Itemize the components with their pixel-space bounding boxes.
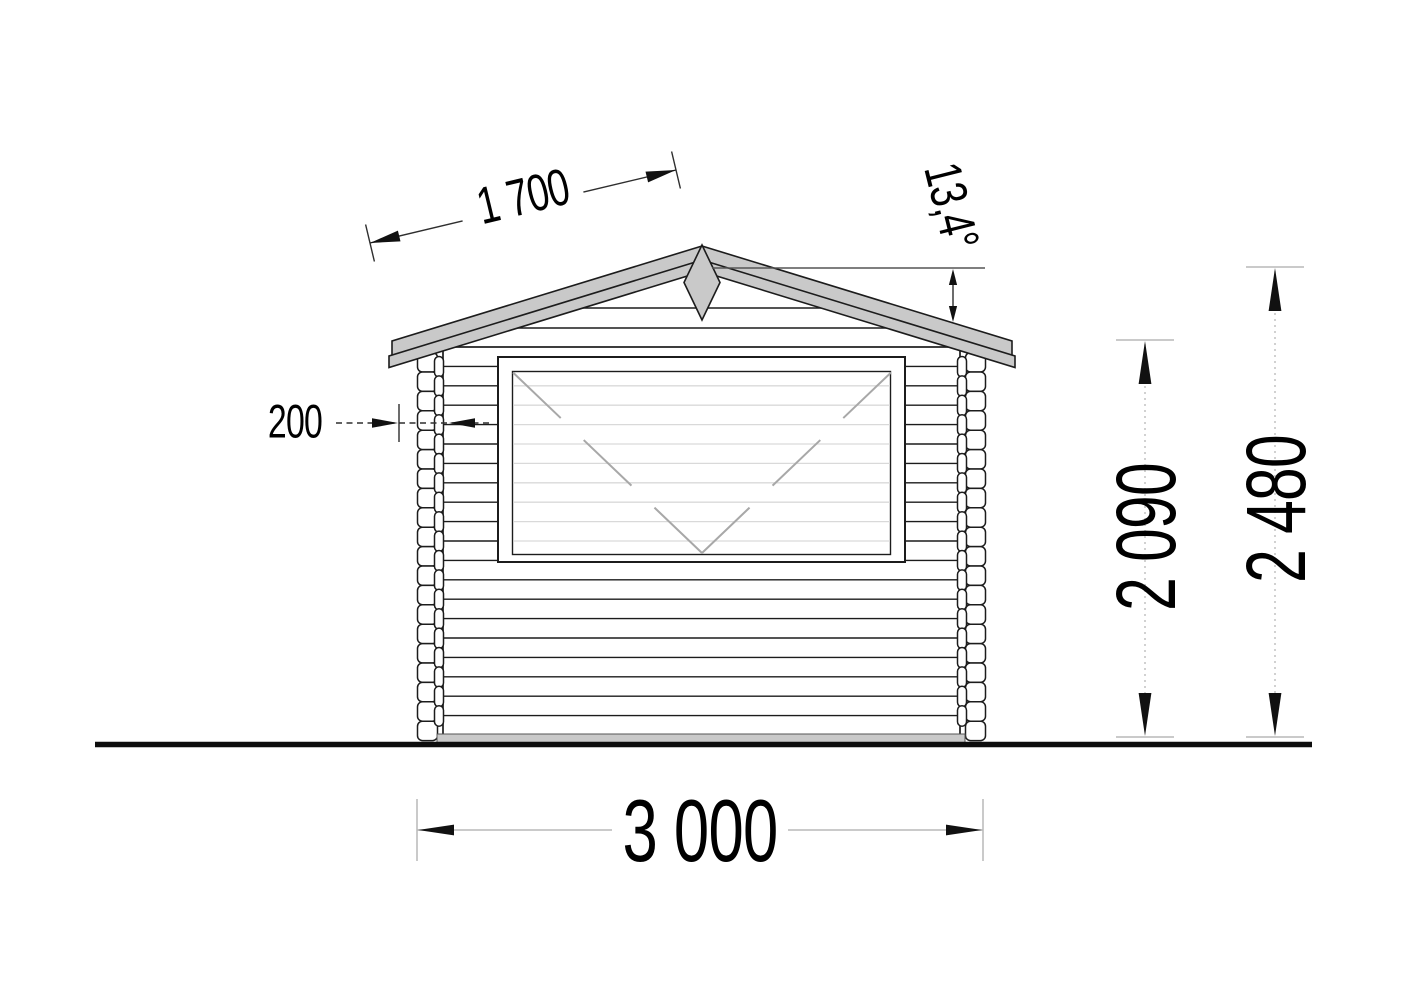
dim-label-overall-width: 3 000 <box>623 787 778 875</box>
dim-label-eave-height: 2 090 <box>1104 463 1188 611</box>
window-outer-frame <box>498 357 905 562</box>
dim-label-ridge-height: 2 480 <box>1234 435 1318 583</box>
dim-label-wall-offset: 200 <box>268 398 322 445</box>
window <box>498 357 905 562</box>
elevation-canvas: 1 700 13,4° 200 3 000 2 090 2 480 <box>0 0 1403 992</box>
